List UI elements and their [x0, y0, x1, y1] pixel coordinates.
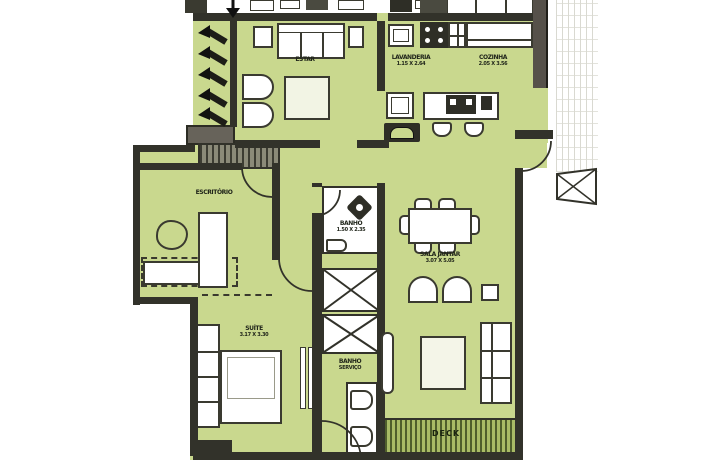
- room-label-living: ESTAR: [281, 57, 329, 64]
- plan-linework: [0, 0, 710, 473]
- door-swing-arc: [242, 141, 551, 460]
- floor-plan-canvas: ESTAR LAVANDERIA1.15 X 2.64 COZINHA2.05 …: [0, 0, 710, 473]
- room-label-service-wc: BANHOSERVIÇO: [326, 359, 374, 371]
- room-label-laundry: LAVANDERIA1.15 X 2.64: [384, 55, 438, 67]
- stair-steps-icon: [198, 25, 226, 124]
- side-wedge-icon: [557, 169, 596, 204]
- room-label-office: ESCRITÓRIO: [171, 190, 257, 197]
- room-label-bath: BANHO1.50 X 2.35: [324, 221, 378, 233]
- room-label-kitchen: COZINHA2.05 X 3.56: [466, 55, 520, 67]
- shaft-x-icon: [324, 270, 378, 352]
- entrance-arrow-icon: [226, 0, 240, 18]
- room-label-deck: DECK: [416, 430, 476, 439]
- room-label-dining: SALA JANTAR3.07 X 5.05: [406, 252, 474, 264]
- room-label-suite: SUÍTE3.17 X 3.30: [222, 326, 286, 338]
